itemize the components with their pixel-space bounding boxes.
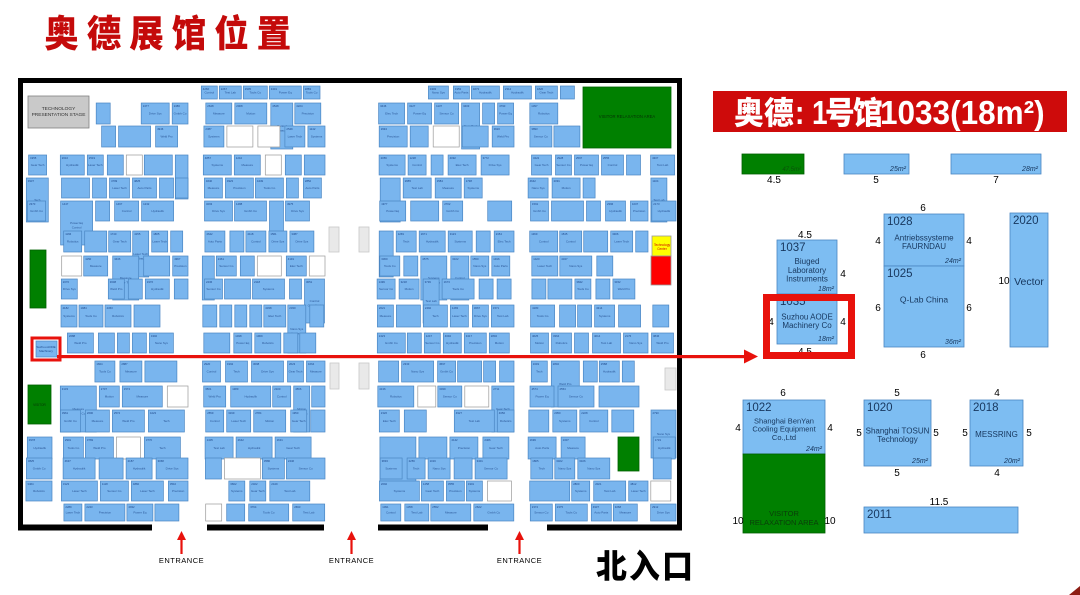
svg-text:3446: 3446 — [380, 104, 387, 108]
svg-text:Control: Control — [277, 395, 287, 399]
svg-text:Weld Pro: Weld Pro — [497, 135, 510, 139]
svg-text:2228: 2228 — [581, 411, 588, 415]
svg-text:4: 4 — [966, 236, 972, 247]
svg-text:4673: 4673 — [473, 87, 480, 91]
svg-text:2588: 2588 — [601, 362, 608, 366]
svg-text:ENTRANCE: ENTRANCE — [329, 556, 374, 565]
svg-text:4650: 4650 — [499, 411, 506, 415]
svg-text:Measure: Measure — [208, 186, 220, 190]
svg-text:1673: 1673 — [444, 280, 451, 284]
svg-text:Drive Sys: Drive Sys — [291, 209, 304, 213]
svg-text:Auto Parts: Auto Parts — [494, 264, 509, 268]
svg-text:Nano Sys: Nano Sys — [433, 467, 447, 471]
svg-text:1020: 1020 — [867, 402, 893, 414]
svg-text:1719: 1719 — [655, 438, 662, 442]
svg-text:Gmbh Co: Gmbh Co — [64, 419, 77, 423]
svg-text:2802: 2802 — [553, 362, 560, 366]
svg-text:1358: 1358 — [406, 505, 413, 509]
svg-text:4548: 4548 — [272, 104, 279, 108]
svg-text:25m²: 25m² — [889, 166, 907, 173]
svg-text:Auto Parts: Auto Parts — [305, 186, 320, 190]
svg-text:Tools Co: Tools Co — [577, 287, 589, 291]
svg-text:Nano Sys: Nano Sys — [432, 91, 446, 95]
svg-text:2642: 2642 — [238, 438, 245, 442]
svg-text:2289: 2289 — [65, 505, 72, 509]
svg-text:2802: 2802 — [491, 334, 498, 338]
svg-text:Measure: Measure — [380, 314, 392, 318]
svg-text:1: 1 — [812, 95, 828, 132]
svg-text:Measure: Measure — [241, 163, 253, 167]
svg-text:Gear Tech: Gear Tech — [535, 163, 549, 167]
svg-text:1977: 1977 — [381, 202, 388, 206]
svg-text:3293: 3293 — [206, 202, 213, 206]
svg-text:1269: 1269 — [398, 232, 405, 236]
svg-text:Robotics: Robotics — [538, 112, 550, 116]
svg-text:Hydraulik: Hydraulik — [244, 395, 257, 399]
svg-text:4975: 4975 — [287, 202, 294, 206]
svg-text:3501: 3501 — [205, 387, 212, 391]
svg-text:4338: 4338 — [265, 306, 272, 310]
svg-text:3306: 3306 — [612, 232, 619, 236]
svg-text:4347: 4347 — [561, 257, 568, 261]
svg-text:Nano Sys: Nano Sys — [587, 467, 601, 471]
svg-text:4574: 4574 — [532, 387, 539, 391]
svg-text:2623: 2623 — [289, 362, 296, 366]
svg-text:4857: 4857 — [205, 156, 212, 160]
svg-text:3580: 3580 — [264, 459, 271, 463]
svg-text:VISITOR RELAXATION AREA: VISITOR RELAXATION AREA — [599, 114, 656, 119]
svg-text:Measure: Measure — [125, 370, 137, 374]
svg-text:2486: 2486 — [174, 104, 181, 108]
svg-text:Systems: Systems — [599, 314, 611, 318]
svg-text:TECHNOLOGY: TECHNOLOGY — [42, 106, 76, 112]
svg-text:1377: 1377 — [143, 104, 150, 108]
svg-text:Weld Pro: Weld Pro — [160, 135, 173, 139]
svg-text:Precision: Precision — [633, 209, 646, 213]
svg-text:10: 10 — [732, 516, 744, 527]
svg-text:FAURNDAU: FAURNDAU — [902, 242, 946, 251]
svg-text:2326: 2326 — [381, 411, 388, 415]
svg-text:4224: 4224 — [296, 104, 303, 108]
svg-text:Systems: Systems — [467, 186, 479, 190]
svg-text:Systems: Systems — [63, 314, 75, 318]
svg-text:2187: 2187 — [128, 459, 135, 463]
svg-text:3102: 3102 — [452, 257, 459, 261]
svg-text:2370: 2370 — [29, 202, 36, 206]
svg-text:3770: 3770 — [146, 438, 153, 442]
svg-text:Elec Tech: Elec Tech — [456, 163, 469, 167]
svg-text:2256: 2256 — [409, 459, 416, 463]
svg-text:4937: 4937 — [593, 505, 600, 509]
svg-text:3360: 3360 — [381, 257, 388, 261]
svg-text:Sensor Co: Sensor Co — [425, 341, 440, 345]
svg-text:4: 4 — [827, 423, 833, 434]
svg-text:Control: Control — [72, 225, 82, 229]
svg-text:2597: 2597 — [576, 156, 583, 160]
svg-text:4575: 4575 — [422, 257, 429, 261]
svg-text:2648: 2648 — [207, 104, 214, 108]
svg-text:2050: 2050 — [554, 411, 561, 415]
svg-text:4118: 4118 — [247, 232, 253, 236]
svg-text:Weld Pro: Weld Pro — [74, 341, 87, 345]
svg-text:2554: 2554 — [560, 387, 567, 391]
svg-text:1022: 1022 — [746, 402, 772, 414]
svg-text:Test Lab: Test Lab — [412, 186, 424, 190]
svg-text:Laser Tech: Laser Tech — [288, 135, 303, 139]
svg-text:Control: Control — [386, 511, 396, 515]
svg-text:24m²: 24m² — [805, 446, 823, 453]
svg-text:Sensor Co: Sensor Co — [206, 287, 221, 291]
svg-text:3403: 3403 — [463, 104, 470, 108]
svg-text:4.5: 4.5 — [798, 230, 812, 241]
svg-text:4640: 4640 — [206, 179, 213, 183]
svg-text:Precision: Precision — [233, 186, 246, 190]
svg-text:Elec Tech: Elec Tech — [498, 240, 511, 244]
svg-text:Precision: Precision — [458, 446, 471, 450]
svg-text:Tools Co: Tools Co — [384, 264, 396, 268]
svg-text:Drive Sys: Drive Sys — [149, 112, 162, 116]
svg-text:Antriebssysteme: Antriebssysteme — [894, 233, 954, 242]
svg-text:Sensor Co: Sensor Co — [534, 135, 549, 139]
svg-text:Systems: Systems — [469, 489, 481, 493]
svg-text:Measure: Measure — [92, 419, 104, 423]
svg-text:4314: 4314 — [596, 306, 603, 310]
svg-text:Instruments: Instruments — [786, 275, 828, 284]
svg-text:11.5: 11.5 — [930, 497, 949, 508]
svg-text:Laser Tech: Laser Tech — [66, 511, 81, 515]
svg-text:Systems: Systems — [268, 467, 280, 471]
svg-text:Sensor Co: Sensor Co — [299, 467, 314, 471]
svg-text:Drive Sys: Drive Sys — [166, 467, 179, 471]
svg-text:Hydraulik: Hydraulik — [446, 341, 459, 345]
svg-text:1740: 1740 — [110, 232, 117, 236]
svg-text:5: 5 — [933, 428, 939, 439]
svg-text:3322: 3322 — [556, 459, 563, 463]
svg-text:Robotics: Robotics — [556, 341, 568, 345]
svg-text:1447: 1447 — [62, 202, 69, 206]
svg-text:Drive Sys: Drive Sys — [489, 163, 502, 167]
svg-text:2693: 2693 — [294, 505, 301, 509]
svg-text:Systems: Systems — [263, 287, 275, 291]
svg-text:Gear Tech: Gear Tech — [289, 370, 303, 374]
svg-text:Sensor Co: Sensor Co — [219, 264, 234, 268]
svg-text:1232: 1232 — [143, 202, 150, 206]
svg-text:Measure: Measure — [90, 264, 102, 268]
svg-text:Sensor Co: Sensor Co — [484, 467, 499, 471]
svg-text:3401: 3401 — [271, 87, 278, 91]
svg-text:Technology: Technology — [877, 435, 917, 444]
svg-text:Hydraulik: Hydraulik — [248, 446, 261, 450]
svg-text:3068: 3068 — [158, 459, 165, 463]
svg-text:Robotics: Robotics — [33, 489, 45, 493]
svg-text:Motion: Motion — [562, 186, 571, 190]
svg-text:4597: 4597 — [439, 362, 446, 366]
svg-text:4: 4 — [994, 468, 1000, 479]
svg-text:Tools Co: Tools Co — [263, 511, 275, 515]
svg-text:Systems: Systems — [208, 135, 220, 139]
svg-text:Robotics: Robotics — [112, 314, 124, 318]
svg-text:Sensor Co: Sensor Co — [440, 112, 455, 116]
svg-text:1499: 1499 — [379, 280, 386, 284]
svg-text:Sensor Co: Sensor Co — [443, 395, 458, 399]
svg-text:Laser Tech: Laser Tech — [112, 186, 127, 190]
svg-text:4: 4 — [840, 317, 846, 328]
svg-text:2549: 2549 — [286, 127, 293, 131]
svg-text:Systems: Systems — [394, 489, 406, 493]
svg-text:Power Eq: Power Eq — [236, 341, 249, 345]
svg-text:2928: 2928 — [557, 156, 564, 160]
svg-text:3364: 3364 — [553, 334, 560, 338]
svg-text:Nano Sys: Nano Sys — [532, 186, 546, 190]
svg-text:Center: Center — [657, 247, 668, 251]
svg-text:1104: 1104 — [652, 179, 658, 183]
svg-text:4: 4 — [735, 423, 741, 434]
svg-text:47.5m²: 47.5m² — [782, 167, 802, 173]
svg-text:Systems: Systems — [231, 489, 243, 493]
svg-text:Weld Pro: Weld Pro — [93, 446, 106, 450]
svg-text:3937: 3937 — [28, 179, 35, 183]
svg-text:1016: 1016 — [430, 459, 437, 463]
svg-text:1307: 1307 — [563, 438, 570, 442]
svg-text:4566: 4566 — [295, 387, 302, 391]
svg-text:2784: 2784 — [255, 411, 262, 415]
svg-text:1584: 1584 — [437, 179, 444, 183]
svg-text:4142: 4142 — [451, 438, 458, 442]
svg-text:Tech: Tech — [539, 467, 546, 471]
svg-text:2011: 2011 — [867, 509, 892, 521]
svg-text:Tools Co: Tools Co — [537, 314, 549, 318]
svg-text:Machinery: Machinery — [39, 349, 53, 353]
svg-text:Power Eq: Power Eq — [413, 112, 426, 116]
svg-text:Sensor Co: Sensor Co — [556, 163, 571, 167]
svg-text:2154: 2154 — [496, 232, 503, 236]
svg-text:Gmbh Co: Gmbh Co — [30, 209, 43, 213]
svg-text:Control: Control — [412, 163, 422, 167]
svg-text:2406: 2406 — [484, 438, 491, 442]
svg-text:Hydraulik: Hydraulik — [33, 446, 46, 450]
svg-text:20m²: 20m² — [1003, 458, 1021, 465]
svg-text:Systems: Systems — [559, 419, 571, 423]
svg-text:2008: 2008 — [236, 104, 243, 108]
svg-text:Gmbh Co: Gmbh Co — [446, 209, 459, 213]
svg-text:Drive Sys: Drive Sys — [212, 209, 225, 213]
svg-text:2267: 2267 — [221, 87, 228, 91]
svg-text:ENTRANCE: ENTRANCE — [497, 556, 542, 565]
svg-text:Drive Sys: Drive Sys — [261, 370, 274, 374]
svg-text:1283: 1283 — [452, 306, 459, 310]
svg-text:1969: 1969 — [256, 334, 263, 338]
svg-text:Co.,Ltd: Co.,Ltd — [772, 433, 796, 442]
svg-text:2375: 2375 — [557, 505, 564, 509]
svg-text:Weld Pro: Weld Pro — [209, 395, 222, 399]
svg-text:Elec Tech: Elec Tech — [383, 419, 396, 423]
svg-text:Nano Sys: Nano Sys — [569, 264, 583, 268]
svg-text:4637: 4637 — [65, 459, 72, 463]
svg-text:Systems: Systems — [575, 489, 587, 493]
svg-text:Laser Tech: Laser Tech — [614, 240, 629, 244]
svg-text:3842: 3842 — [576, 280, 583, 284]
svg-text:3769: 3769 — [87, 438, 94, 442]
svg-text:Tools Co: Tools Co — [264, 186, 276, 190]
svg-text:5: 5 — [1026, 428, 1032, 439]
svg-text:1699: 1699 — [530, 438, 537, 442]
svg-text:2671: 2671 — [421, 232, 428, 236]
svg-text:Test Lab: Test Lab — [604, 489, 616, 493]
svg-text:2901: 2901 — [65, 438, 72, 442]
svg-text:Control: Control — [589, 419, 599, 423]
svg-text:3218: 3218 — [401, 280, 408, 284]
svg-text:1826: 1826 — [537, 87, 544, 91]
svg-text:Test Lab: Test Lab — [284, 489, 296, 493]
svg-text:2020: 2020 — [1013, 215, 1039, 227]
svg-text:1247: 1247 — [426, 334, 433, 338]
svg-text:1389: 1389 — [232, 387, 239, 391]
svg-text:10: 10 — [824, 516, 836, 527]
svg-text:18m²: 18m² — [818, 286, 835, 293]
svg-text:1955: 1955 — [30, 156, 37, 160]
svg-text:2091: 2091 — [554, 179, 561, 183]
svg-text:Tech: Tech — [403, 240, 410, 244]
svg-text:Precision: Precision — [172, 489, 185, 493]
svg-text:4266: 4266 — [203, 87, 210, 91]
svg-text:Sensor Co: Sensor Co — [569, 395, 584, 399]
svg-text:1953: 1953 — [455, 87, 462, 91]
svg-text:Test Lab: Test Lab — [497, 314, 509, 318]
svg-text:Tools Co: Tools Co — [99, 370, 111, 374]
svg-text:Power Eq: Power Eq — [580, 163, 593, 167]
svg-text:3764: 3764 — [250, 505, 257, 509]
svg-text:Precision: Precision — [387, 135, 400, 139]
svg-text:4642: 4642 — [206, 232, 213, 236]
svg-text:4191: 4191 — [288, 257, 295, 261]
svg-text:3123: 3123 — [450, 232, 457, 236]
svg-text:Robotics: Robotics — [390, 395, 402, 399]
svg-text:6: 6 — [780, 388, 786, 399]
svg-text:Weld Pro: Weld Pro — [110, 287, 123, 291]
svg-text:2552: 2552 — [432, 505, 439, 509]
svg-text:2711: 2711 — [493, 387, 499, 391]
svg-text:2070: 2070 — [63, 280, 70, 284]
svg-text:Laser Tech: Laser Tech — [231, 419, 246, 423]
svg-text:3199: 3199 — [228, 411, 235, 415]
svg-text:Hydraulik: Hydraulik — [151, 209, 164, 213]
svg-text:1984: 1984 — [81, 306, 88, 310]
svg-text:1649: 1649 — [533, 362, 540, 366]
svg-text:Motion: Motion — [495, 341, 504, 345]
svg-text:4882: 4882 — [133, 482, 140, 486]
svg-text:2021: 2021 — [379, 306, 386, 310]
svg-text:Systems: Systems — [385, 467, 397, 471]
svg-text:1028: 1028 — [887, 216, 913, 228]
svg-text:Hydraulik: Hydraulik — [658, 209, 671, 213]
svg-text:4812: 4812 — [630, 482, 637, 486]
svg-text:Laser Tech: Laser Tech — [631, 489, 646, 493]
svg-text:Tech: Tech — [163, 419, 170, 423]
svg-text:1420: 1420 — [533, 257, 540, 261]
svg-text:Measure: Measure — [445, 511, 457, 515]
svg-text:2622: 2622 — [475, 505, 482, 509]
svg-text:3422: 3422 — [533, 156, 540, 160]
svg-text:3620: 3620 — [494, 127, 501, 131]
svg-text:Vector: Vector — [1014, 276, 1044, 288]
svg-text:Gmbh Co: Gmbh Co — [533, 209, 546, 213]
svg-text:Control: Control — [207, 370, 217, 374]
svg-text:Gear Tech: Gear Tech — [426, 489, 440, 493]
svg-text:2555: 2555 — [603, 156, 610, 160]
svg-text:2243: 2243 — [86, 505, 93, 509]
svg-text:Weld Pro: Weld Pro — [122, 419, 135, 423]
svg-text:Test Lab: Test Lab — [601, 341, 613, 345]
svg-text:Hydraulik: Hydraulik — [133, 467, 146, 471]
svg-text:1467: 1467 — [116, 202, 123, 206]
svg-text:Nano Sys: Nano Sys — [473, 264, 487, 268]
svg-text:1488: 1488 — [236, 202, 243, 206]
svg-text:1824: 1824 — [96, 362, 103, 366]
svg-text:1025: 1025 — [887, 268, 913, 280]
svg-text:2920: 2920 — [204, 362, 211, 366]
svg-text:Measure: Measure — [567, 446, 579, 450]
svg-text:Auto Parts: Auto Parts — [535, 446, 550, 450]
svg-text:4625: 4625 — [532, 334, 539, 338]
svg-text:Gear Tech: Gear Tech — [489, 446, 503, 450]
svg-text:1571: 1571 — [493, 306, 500, 310]
svg-text:3608: 3608 — [110, 280, 117, 284]
svg-text:2707: 2707 — [101, 387, 108, 391]
svg-text:4453: 4453 — [107, 306, 114, 310]
svg-text:25m²: 25m² — [911, 458, 929, 465]
svg-text:Tools Co: Tools Co — [306, 91, 318, 95]
svg-text:1561: 1561 — [270, 232, 277, 236]
svg-text:Hydraulik: Hydraulik — [479, 91, 492, 95]
svg-text:Drive Sys: Drive Sys — [295, 240, 308, 244]
svg-text:Control: Control — [122, 209, 132, 213]
svg-text:Hydraulik: Hydraulik — [609, 209, 622, 213]
svg-text:5: 5 — [894, 388, 900, 399]
svg-text:2436: 2436 — [206, 280, 213, 284]
svg-text:Laser Tech: Laser Tech — [140, 489, 155, 493]
svg-text:Sensor Co: Sensor Co — [534, 511, 549, 515]
svg-text:VISITOR: VISITOR — [33, 403, 46, 407]
svg-text:2574: 2574 — [114, 411, 121, 415]
svg-text:2492: 2492 — [425, 306, 432, 310]
svg-text:Weld Pro: Weld Pro — [618, 287, 631, 291]
svg-text:Hydraulik: Hydraulik — [603, 370, 616, 374]
svg-text:6: 6 — [966, 303, 972, 314]
svg-text:2461: 2461 — [218, 257, 225, 261]
svg-text:Gmbh Co: Gmbh Co — [487, 511, 500, 515]
svg-text:36m²: 36m² — [945, 339, 962, 346]
svg-text:4303: 4303 — [430, 87, 437, 91]
svg-text:4692: 4692 — [445, 334, 452, 338]
svg-text:Auto Parts: Auto Parts — [208, 240, 223, 244]
svg-text:2100: 2100 — [274, 387, 281, 391]
svg-text:Systems: Systems — [311, 135, 323, 139]
svg-text:3833: 3833 — [382, 459, 389, 463]
svg-text:4223: 4223 — [150, 411, 157, 415]
svg-text:Test Lab: Test Lab — [469, 419, 481, 423]
svg-text:Gmbh Co: Gmbh Co — [33, 467, 46, 471]
svg-text:Motion: Motion — [265, 419, 274, 423]
svg-text:3555: 3555 — [448, 482, 455, 486]
svg-text:3106: 3106 — [579, 459, 586, 463]
svg-text:3893: 3893 — [531, 127, 538, 131]
svg-text:2883: 2883 — [305, 87, 312, 91]
svg-text:1976: 1976 — [147, 280, 154, 284]
svg-text:2887: 2887 — [121, 362, 128, 366]
svg-text:4180: 4180 — [532, 306, 539, 310]
svg-text:1574: 1574 — [124, 387, 131, 391]
svg-text:Hydraulik: Hydraulik — [73, 467, 86, 471]
